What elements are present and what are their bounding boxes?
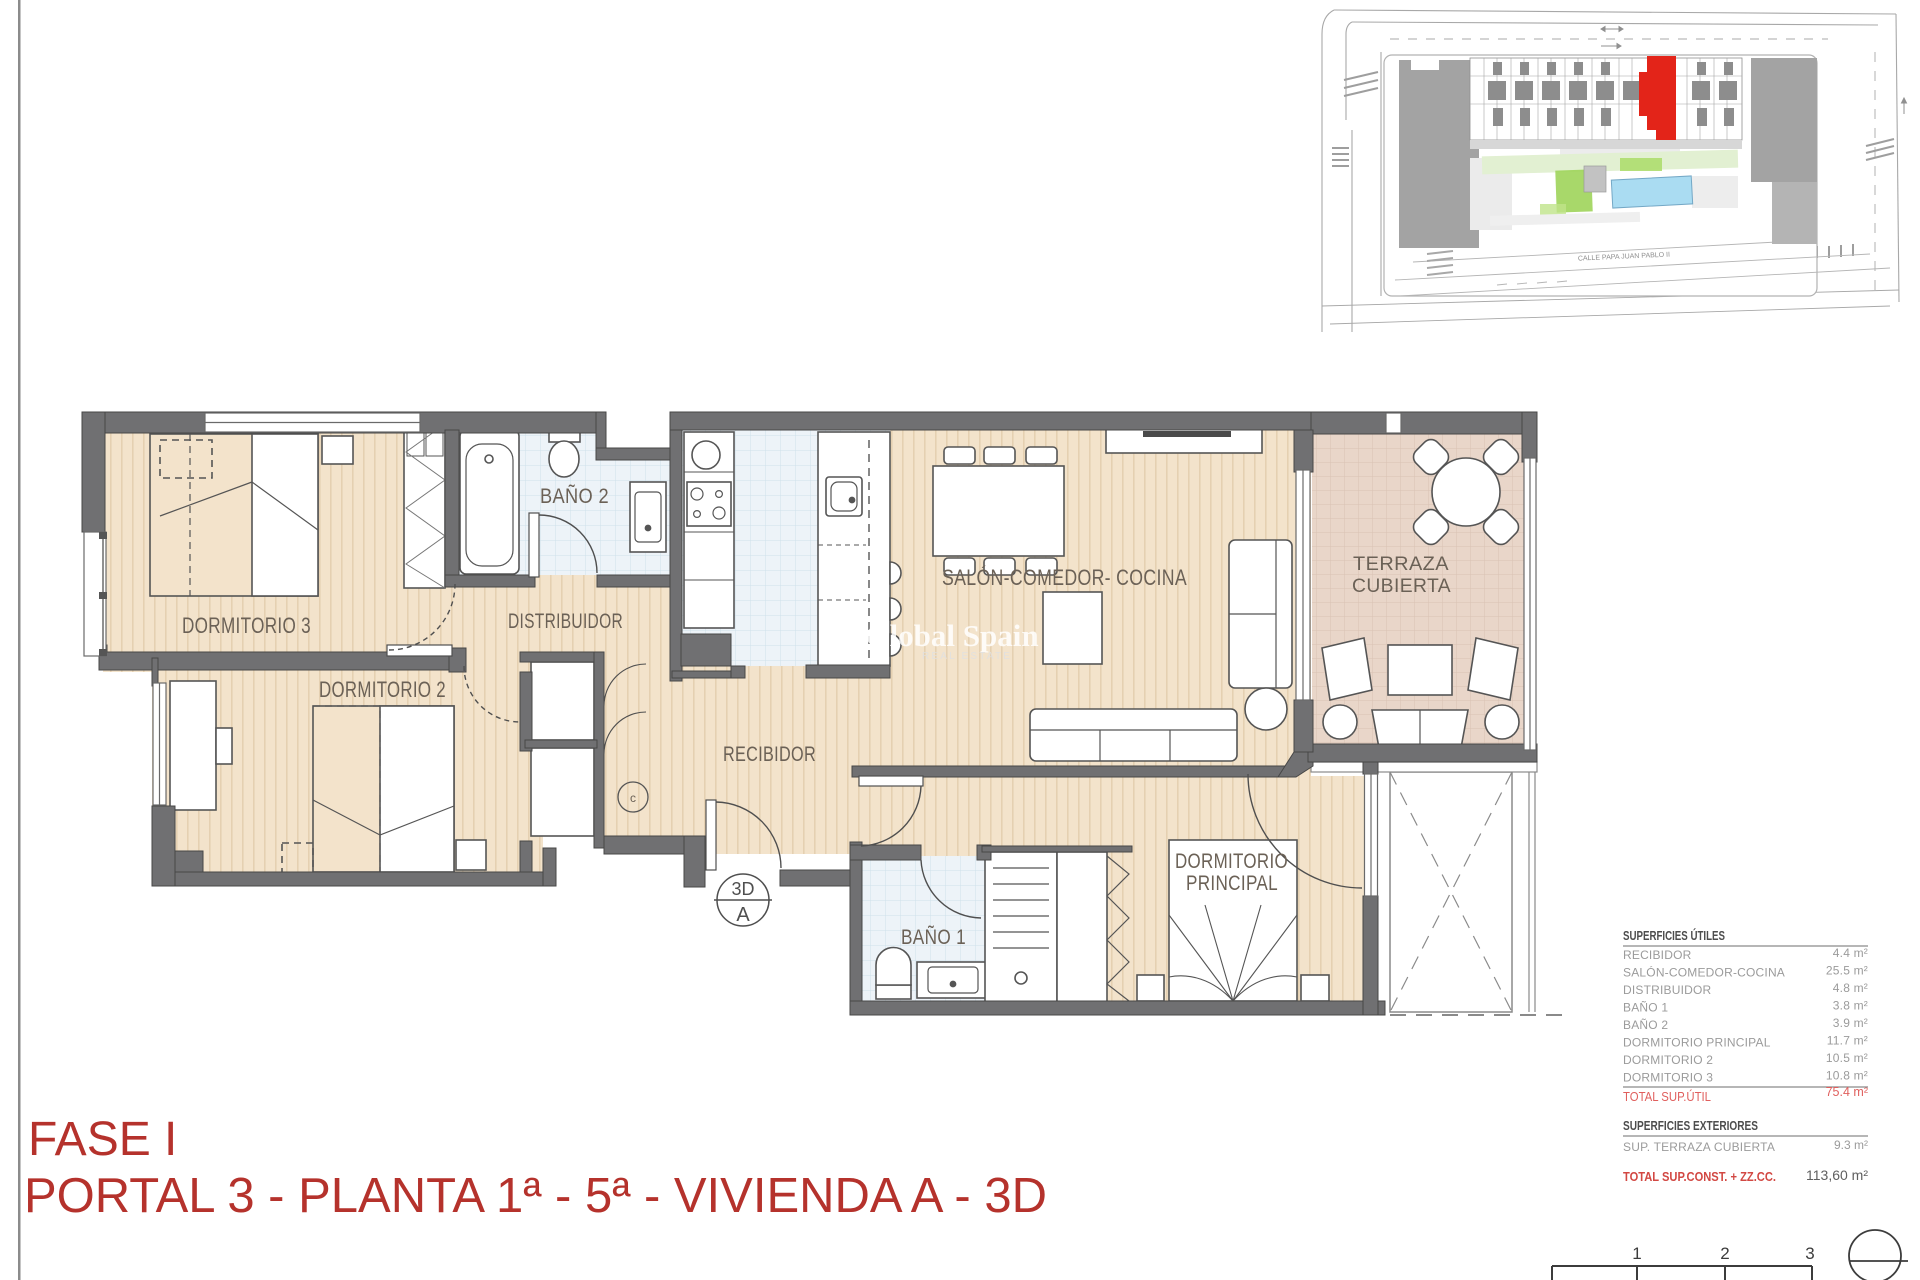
svg-text:SALÓN-COMEDOR- COCINA: SALÓN-COMEDOR- COCINA: [942, 565, 1187, 590]
svg-text:Global Spain: Global Spain: [865, 618, 1038, 653]
svg-text:DISTRIBUIDOR: DISTRIBUIDOR: [1623, 983, 1712, 997]
svg-text:FASE I: FASE I: [28, 1113, 177, 1166]
svg-text:11.7 m²: 11.7 m²: [1827, 1034, 1868, 1048]
svg-text:113,60 m²: 113,60 m²: [1806, 1167, 1868, 1183]
svg-text:PORTAL 3 - PLANTA 1ª - 5ª - VI: PORTAL 3 - PLANTA 1ª - 5ª - VIVIENDA A -…: [24, 1169, 1047, 1223]
svg-text:3.9 m²: 3.9 m²: [1833, 1016, 1868, 1030]
svg-text:REAL ESTATE: REAL ESTATE: [922, 651, 1012, 662]
svg-text:DORMITORIO 3: DORMITORIO 3: [1623, 1071, 1713, 1085]
svg-text:BAÑO 2: BAÑO 2: [1623, 1018, 1668, 1032]
svg-text:10.8 m²: 10.8 m²: [1826, 1069, 1868, 1083]
svg-text:PRINCIPAL: PRINCIPAL: [1186, 872, 1278, 895]
svg-text:TOTAL SUP.ÚTIL: TOTAL SUP.ÚTIL: [1623, 1089, 1711, 1104]
svg-text:BAÑO 1: BAÑO 1: [1623, 1001, 1668, 1015]
svg-text:9.3 m²: 9.3 m²: [1834, 1138, 1868, 1152]
svg-text:RECIBIDOR: RECIBIDOR: [723, 743, 816, 766]
svg-text:BAÑO 2: BAÑO 2: [540, 484, 609, 508]
svg-text:TERRAZA: TERRAZA: [1353, 554, 1449, 575]
svg-text:SUPERFICIES EXTERIORES: SUPERFICIES EXTERIORES: [1623, 1118, 1758, 1133]
svg-text:4.4 m²: 4.4 m²: [1833, 946, 1868, 960]
svg-text:DORMITORIO 2: DORMITORIO 2: [319, 677, 446, 702]
svg-text:TOTAL SUP.CONST. + ZZ.CC.: TOTAL SUP.CONST. + ZZ.CC.: [1623, 1169, 1776, 1184]
svg-text:SUPERFICIES ÚTILES: SUPERFICIES ÚTILES: [1623, 928, 1725, 943]
svg-text:3D: 3D: [731, 879, 754, 899]
svg-text:SUP. TERRAZA CUBIERTA: SUP. TERRAZA CUBIERTA: [1623, 1140, 1775, 1154]
svg-text:1: 1: [1632, 1244, 1641, 1263]
svg-text:2: 2: [1720, 1244, 1729, 1263]
svg-text:DORMITORIO 2: DORMITORIO 2: [1623, 1053, 1713, 1067]
svg-text:3: 3: [1805, 1244, 1814, 1263]
svg-text:DORMITORIO 3: DORMITORIO 3: [182, 613, 311, 638]
svg-text:DORMITORIO: DORMITORIO: [1175, 850, 1288, 873]
svg-text:3.8 m²: 3.8 m²: [1833, 999, 1868, 1013]
svg-text:DORMITORIO PRINCIPAL: DORMITORIO PRINCIPAL: [1623, 1036, 1771, 1050]
svg-text:75.4 m²: 75.4 m²: [1826, 1085, 1868, 1099]
svg-text:A: A: [736, 904, 750, 926]
svg-text:DISTRIBUIDOR: DISTRIBUIDOR: [508, 610, 623, 633]
svg-text:CUBIERTA: CUBIERTA: [1352, 576, 1451, 597]
svg-text:BAÑO 1: BAÑO 1: [901, 925, 966, 949]
svg-text:RECIBIDOR: RECIBIDOR: [1623, 948, 1692, 962]
svg-text:10.5 m²: 10.5 m²: [1826, 1051, 1868, 1065]
svg-text:SALÓN-COMEDOR-COCINA: SALÓN-COMEDOR-COCINA: [1623, 965, 1785, 980]
svg-text:4.8 m²: 4.8 m²: [1833, 981, 1868, 995]
svg-text:c: c: [630, 791, 636, 805]
svg-text:25.5 m²: 25.5 m²: [1826, 964, 1868, 978]
